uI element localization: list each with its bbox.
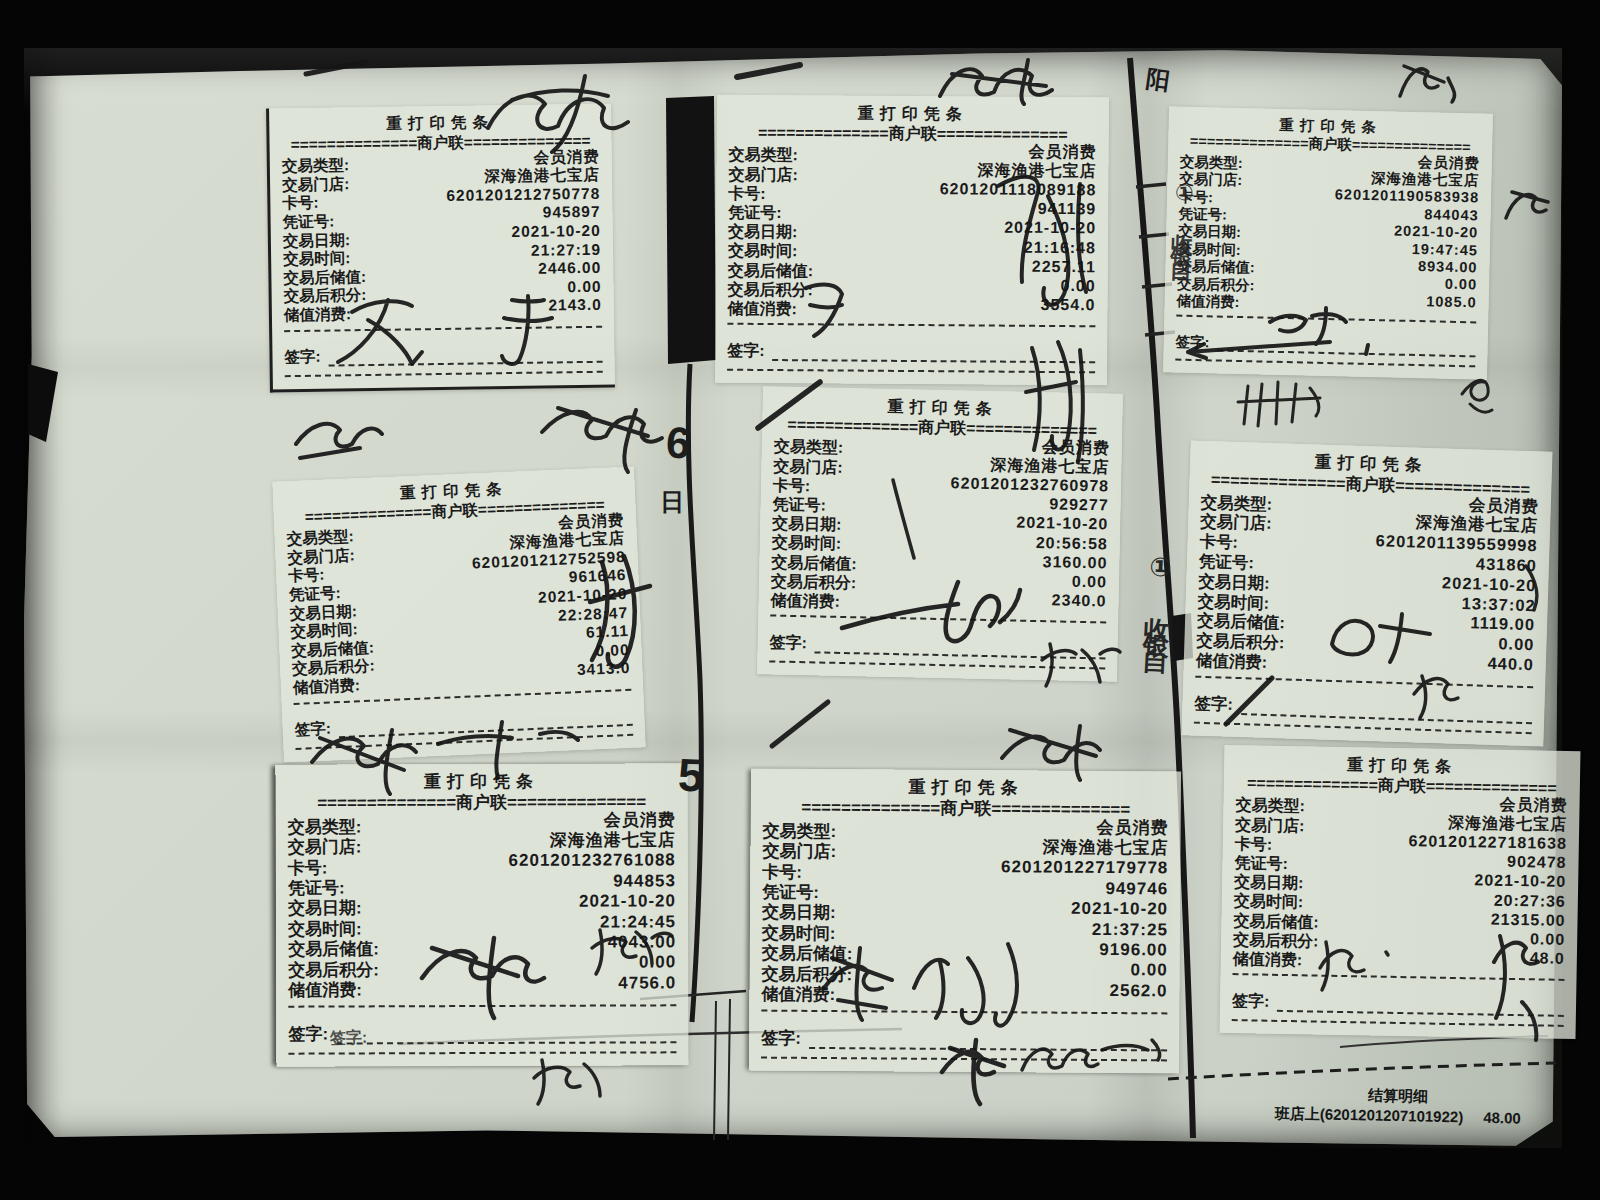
field-value-type: 会员消费 [604,810,676,831]
field-label-date: 交易日期: [772,514,842,535]
field-label-voucher: 凭证号: [1199,552,1255,574]
edge-vertical-text-top: ①收银自 [1167,179,1200,253]
field-label-balance: 交易后储值: [1197,611,1286,634]
field-label-voucher: 凭证号: [728,203,781,223]
field-label-type: 交易类型: [282,156,349,176]
signature-line [815,633,1106,659]
fold-char-ri: 日 [660,486,684,518]
field-label-store: 交易门店: [728,164,797,184]
field-label-voucher: 凭证号: [283,212,335,231]
field-label-card: 卡号: [728,183,765,202]
field-label-time: 交易时间: [1197,591,1269,613]
sign-label: 签字: [294,719,331,739]
field-label-voucher: 凭证号: [1234,853,1288,873]
signature-line [1241,695,1533,724]
field-value-time: 20:56:58 [1036,533,1108,554]
field-label-date: 交易日期: [1198,571,1270,593]
field-value-voucher: 902478 [1507,852,1567,872]
signature-row: 签字: [1194,693,1532,724]
field-label-amount: 储值消费: [284,305,351,325]
field-value-store: 深海渔港七宝店 [1042,838,1168,859]
field-value-type: 会员消费 [1029,141,1097,161]
receipt-1: 重打印凭条==============商户联==============交易类型… [266,104,615,392]
dashed-divider [769,660,1105,669]
dashed-divider [727,368,1095,373]
field-label-date: 交易日期: [1234,872,1304,892]
field-value-voucher: 929277 [1049,494,1109,514]
field-value-type: 会员消费 [1418,154,1480,173]
signature-line [772,341,1095,363]
dashed-divider [1233,973,1565,981]
receipt-row-amount: 储值消费:2340.0 [770,590,1106,616]
field-value-voucher: 944853 [613,871,676,892]
field-label-amount: 储值消费: [761,984,835,1005]
sign-label: 签字: [284,348,320,367]
dashed-divider [1194,722,1532,735]
signature-line [1277,992,1564,1017]
signature-row: 签字: [727,341,1095,363]
field-label-voucher: 凭证号: [762,883,819,904]
field-value-store: 深海渔港七宝店 [977,160,1096,180]
field-label-date: 交易日期: [283,231,350,251]
receipt-2: 重打印凭条==============商户联==============交易类型… [715,95,1109,385]
field-value-points: 0.00 [1130,961,1167,982]
field-label-time: 交易时间: [728,241,797,261]
receipt-4: 重打印凭条==============商户联==============交易类型… [272,467,645,762]
dashed-divider [288,1005,676,1008]
field-label-voucher: 凭证号: [289,584,341,605]
field-label-store: 交易门店: [762,842,836,863]
field-label-card: 卡号: [288,566,325,586]
field-value-type: 会员消费 [534,147,600,167]
field-value-card: 6201201227179778 [1001,858,1168,880]
receipt-6: 重打印凭条==============商户联==============交易类型… [1181,440,1552,746]
receipt-row-amount: 储值消费:2143.0 [284,302,602,325]
field-value-type: 会员消费 [1469,495,1540,517]
field-value-amount: 48.0 [1530,948,1565,968]
receipt-title: 重打印凭条 [729,103,1097,125]
field-value-balance: 2257.11 [1032,257,1096,277]
field-label-store: 交易门店: [288,838,362,859]
sign-label: 签字: [1194,694,1233,715]
field-label-points: 交易后积分: [292,657,375,679]
receipt-row-amount: 储值消费:1085.0 [1176,292,1476,316]
receipt-8: 重打印凭条==============商户联==============交易类型… [749,769,1181,1074]
field-label-type: 交易类型: [1180,153,1243,172]
field-value-type: 会员消费 [1042,437,1110,458]
field-value-voucher: 945897 [543,203,601,222]
field-label-store: 交易门店: [773,456,843,477]
field-value-voucher: 844043 [1424,206,1479,225]
scanned-receipt-sheet: 重打印凭条==============商户联==============交易类型… [0,0,1600,1200]
sign-label: 签字: [288,1024,328,1045]
signature-line [336,1023,676,1045]
field-value-type: 会员消费 [1097,818,1169,839]
field-label-date: 交易日期: [728,222,797,242]
field-label-points: 交易后积分: [284,286,367,306]
field-label-points: 交易后积分: [1196,631,1285,654]
field-value-time: 21:37:25 [1092,920,1168,941]
field-label-balance: 交易后储值: [771,552,857,573]
signature-line [329,343,603,366]
field-label-balance: 交易后储值: [762,944,853,965]
dashed-divider [288,1051,676,1054]
field-value-date: 2021-10-20 [1004,218,1096,238]
field-value-points: 0.00 [567,278,601,297]
field-value-voucher: 941139 [1038,199,1097,219]
dashed-divider [761,1057,1167,1062]
field-value-balance: 2446.00 [538,259,601,278]
field-label-points: 交易后积分: [771,571,857,592]
field-label-amount: 储值消费: [1195,651,1267,673]
field-label-points: 交易后积分: [1233,930,1319,951]
receipt-9: 重打印凭条==============商户联==============交易类型… [1220,745,1581,1039]
field-value-date: 2021-10-20 [579,892,676,913]
field-value-time: 19:47:45 [1412,240,1478,259]
field-value-points: 0.00 [639,953,676,974]
settlement-footer: 结算明细 班店上(6201201207101922) 48.00 [1238,1083,1559,1130]
field-label-type: 交易类型: [774,437,844,458]
signature-line [1217,334,1475,358]
signature-line [338,706,632,737]
fold-digit-5: 5 [677,748,704,803]
field-value-store: 深海渔港七宝店 [550,830,676,851]
field-label-date: 交易日期: [762,903,836,924]
field-label-points: 交易后积分: [1177,275,1255,294]
receipt-title: 重打印凭条 [288,771,676,793]
signature-row: 签字: [284,343,602,366]
field-value-type: 会员消费 [1499,794,1567,814]
field-label-store: 交易门店: [1235,815,1305,835]
sign-label: 签字: [1176,333,1210,351]
dashed-divider [1176,315,1476,324]
sign-label: 签字: [761,1028,801,1049]
field-value-balance: 1119.00 [1470,614,1535,636]
field-value-date: 2021-10-20 [1071,899,1168,920]
receipt-7: 重打印凭条==============商户联==============交易类型… [275,763,688,1066]
field-label-card: 卡号: [1235,834,1273,854]
signature-row: 签字: [1176,333,1476,358]
field-label-amount: 储值消费: [293,676,361,697]
field-label-time: 交易时间: [283,249,350,269]
field-value-amount: 3413.0 [577,659,631,680]
receipt-title: 重打印凭条 [763,777,1169,800]
field-value-amount: 3554.0 [1041,295,1096,315]
field-label-amount: 储值消费: [727,299,796,319]
field-value-store: 深海渔港七宝店 [484,166,600,186]
field-label-balance: 交易后储值: [1177,258,1255,277]
field-label-amount: 储值消费: [1176,292,1239,311]
signature-row: 签字: [761,1028,1167,1052]
field-label-time: 交易时间: [1234,891,1304,911]
field-value-amount: 2562.0 [1109,981,1167,1002]
receipt-row-amount: 储值消费:3554.0 [727,299,1095,321]
field-label-store: 交易门店: [1200,512,1272,534]
field-label-time: 交易时间: [762,923,836,944]
field-value-balance: 9196.00 [1099,940,1168,961]
field-label-amount: 储值消费: [1233,949,1303,969]
settlement-entry: 班店上(6201201207101922) [1275,1104,1464,1128]
fold-digit-6: 6 [665,417,692,468]
dashed-divider [285,370,603,376]
field-label-points: 交易后积分: [728,279,813,299]
field-value-date: 2021-10-20 [511,222,601,242]
field-value-date: 2021-10-20 [1442,573,1537,596]
field-value-time: 21:16:48 [1024,237,1096,257]
field-label-points: 交易后积分: [288,960,379,981]
sign-label: 签字: [727,341,764,360]
field-label-card: 卡号: [1199,532,1238,553]
dashed-divider [770,615,1106,624]
signature-line [809,1028,1167,1051]
field-value-balance: 21315.00 [1491,909,1566,929]
field-value-balance: 61.11 [586,622,630,642]
field-value-points: 0.00 [1060,276,1095,295]
receipt-row-balance: 交易后储值:2257.11 [728,260,1096,282]
field-label-amount: 储值消费: [288,980,362,1001]
field-value-points: 0.00 [595,641,630,661]
field-label-balance: 交易后储值: [288,939,379,960]
receipt-row-balance: 交易后储值:9196.00 [762,944,1168,967]
receipt-5: 重打印凭条==============商户联==============交易类型… [757,386,1123,681]
dashed-divider [727,323,1095,328]
field-value-card: 6201201139559998 [1375,532,1537,557]
field-value-date: 2021-10-20 [1474,871,1566,892]
sign-label: 签字: [769,633,807,653]
field-value-points: 0.00 [1072,572,1108,592]
field-label-balance: 交易后储值: [283,268,366,288]
field-value-voucher: 949746 [1105,879,1168,900]
dashed-divider [1175,359,1475,368]
field-value-amount: 440.0 [1487,654,1534,675]
field-value-card: 6201201227181638 [1408,831,1567,853]
field-value-time: 21:24:45 [600,912,676,933]
field-value-balance: 4043.00 [608,932,677,953]
field-label-card: 卡号: [282,194,318,213]
signature-row: 签字: [769,633,1105,660]
field-value-card: 6201201232761088 [508,851,675,872]
field-label-type: 交易类型: [1200,492,1272,514]
field-value-time: 13:37:02 [1461,594,1536,616]
field-label-type: 交易类型: [763,821,837,842]
field-label-time: 交易时间: [288,919,362,940]
sign-label: 签字: [1232,992,1270,1012]
field-label-type: 交易类型: [288,817,362,838]
dashed-divider [1232,1019,1564,1027]
field-value-date: 2021-10-20 [1016,513,1108,534]
field-value-amount: 2143.0 [548,296,602,315]
receipt-row-balance: 交易后储值:4043.00 [288,938,676,960]
receipt-row-amount: 储值消费:4756.0 [288,979,676,1001]
field-value-store: 深海渔港七宝店 [990,455,1109,477]
field-label-card: 卡号: [288,858,328,879]
field-label-time: 交易时间: [772,533,842,554]
field-label-date: 交易日期: [288,899,362,920]
field-label-type: 交易类型: [1235,795,1305,815]
field-value-date: 2021-10-20 [1394,223,1479,242]
field-value-amount: 2340.0 [1051,590,1106,610]
field-value-points: 0.00 [1445,276,1478,294]
field-label-voucher: 凭证号: [772,494,826,514]
dashed-divider [284,325,602,331]
field-value-balance: 8934.00 [1418,258,1478,277]
field-label-balance: 交易后储值: [1233,911,1319,932]
settlement-amount: 48.00 [1483,1108,1521,1129]
field-label-voucher: 凭证号: [288,878,345,899]
receipt-row-points: 交易后积分:0.00 [762,964,1168,987]
field-value-points: 0.00 [1498,634,1535,655]
field-value-balance: 3160.00 [1042,552,1107,573]
field-value-time: 20:27:36 [1494,890,1566,910]
field-value-time: 21:27:19 [531,240,601,260]
field-label-amount: 储值消费: [770,590,840,611]
field-label-store: 交易门店: [287,546,355,567]
field-label-points: 交易后积分: [762,964,853,985]
field-label-card: 卡号: [773,475,811,495]
field-value-voucher: 961646 [568,566,626,587]
field-label-balance: 交易后储值: [728,260,813,280]
field-value-card: 6201201212750778 [446,185,600,206]
field-value-points: 0.00 [1530,929,1565,949]
field-label-type: 交易类型: [729,145,798,165]
dashed-divider [761,1010,1167,1015]
field-value-card: 6201201232760978 [950,473,1109,496]
receipt-row-amount: 储值消费:2562.0 [761,984,1167,1007]
field-value-amount: 1085.0 [1426,293,1477,312]
signature-row: 签字: [1232,991,1564,1016]
field-label-card: 卡号: [762,862,802,883]
field-value-voucher: 431860 [1476,554,1538,576]
edge-vertical-text-bottom: ①收银自 [1140,551,1180,643]
field-value-card: 6201201190583938 [1335,186,1480,207]
field-value-card: 6201201118089188 [940,179,1097,199]
field-label-store: 交易门店: [282,175,349,195]
receipt-3: 重打印凭条==============商户联==============交易类型… [1163,106,1493,380]
field-value-amount: 4756.0 [618,973,676,994]
field-value-store: 深海渔港七宝店 [1448,813,1567,834]
edge-char: 阳 [1144,62,1172,97]
ghost-sign-label: 签字: [330,1028,368,1050]
